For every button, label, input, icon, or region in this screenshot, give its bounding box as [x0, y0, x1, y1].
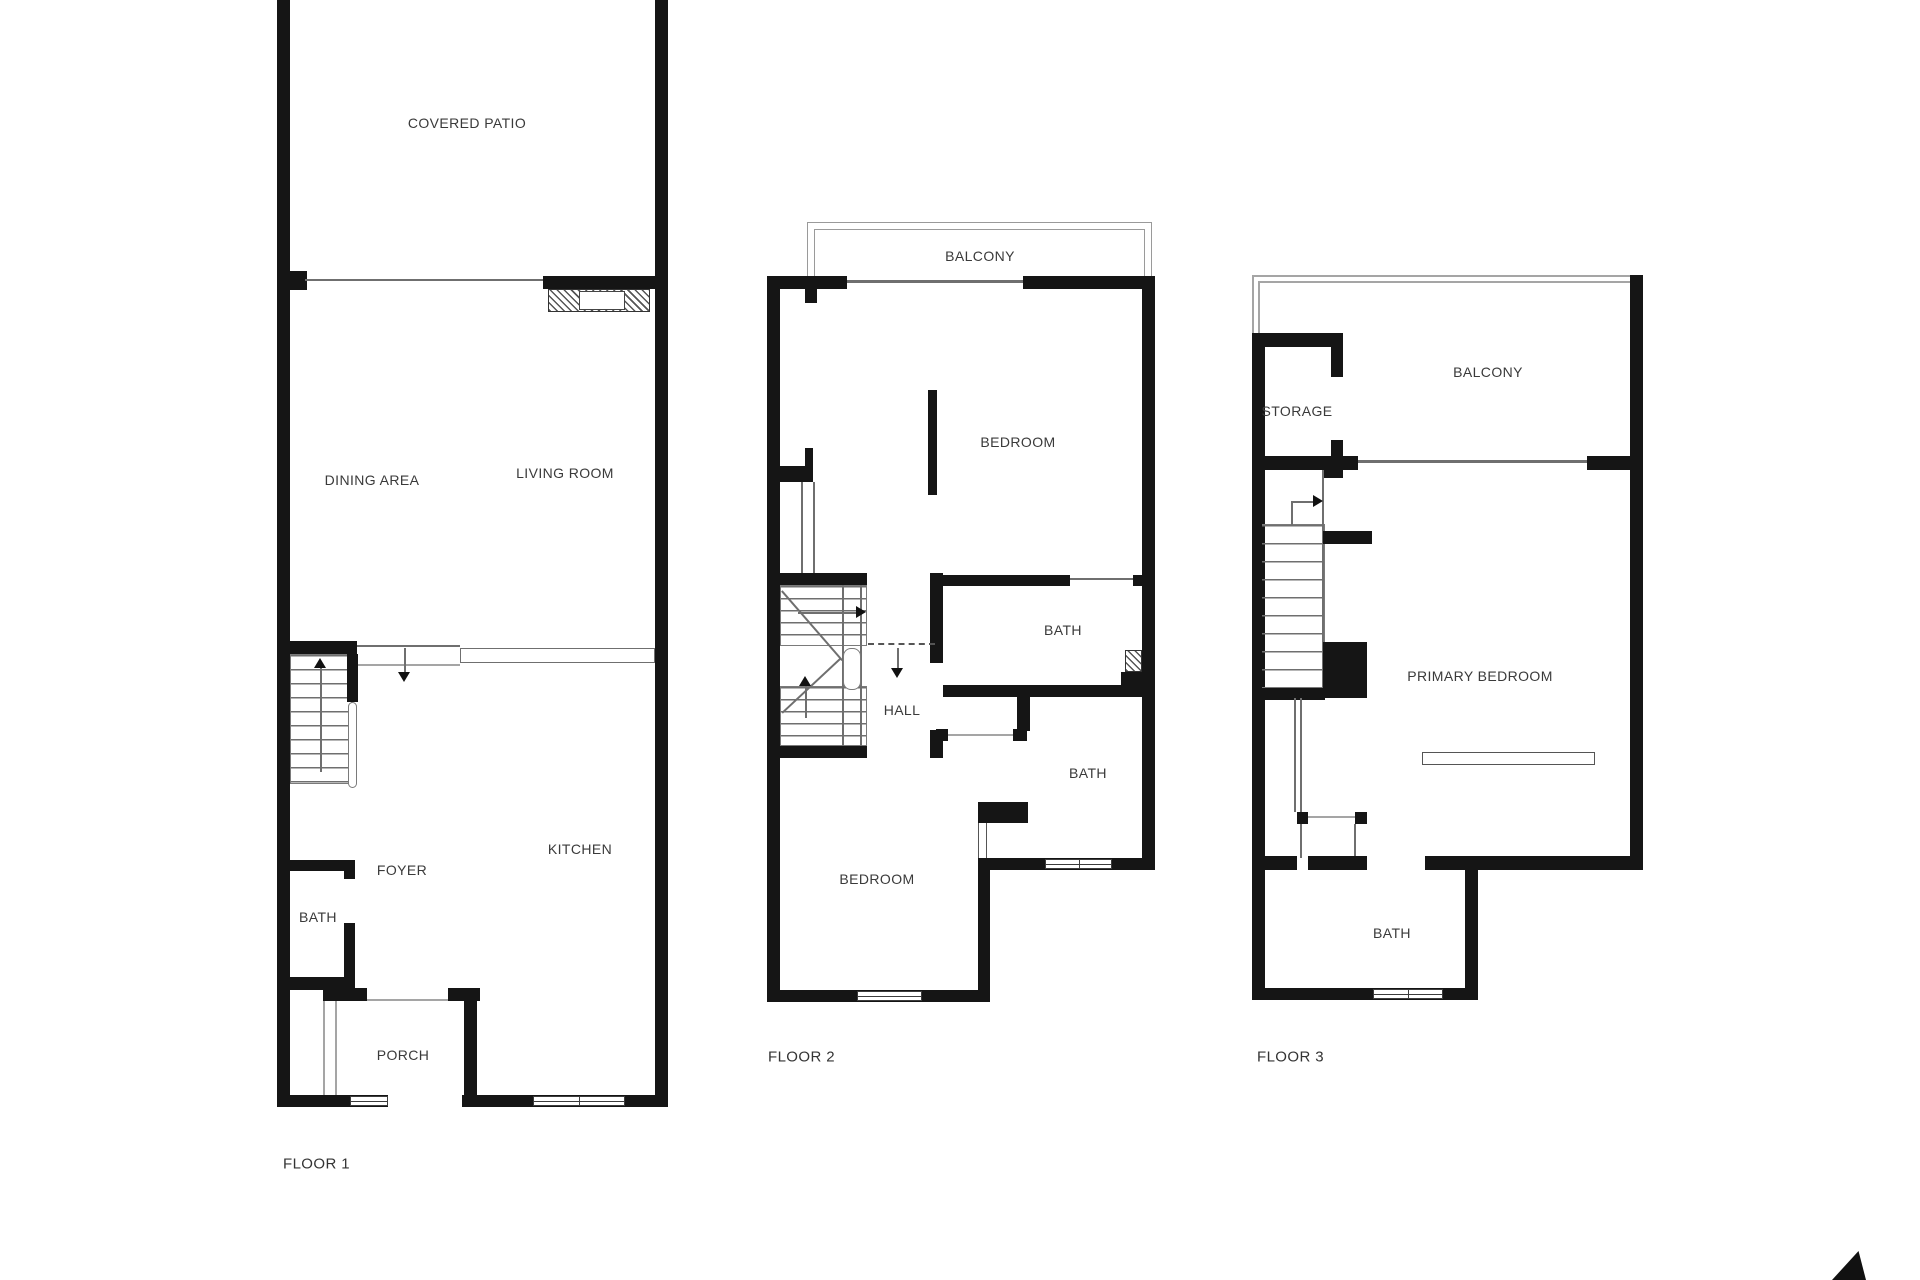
wall	[1630, 275, 1643, 870]
wall	[1587, 456, 1643, 470]
wall	[1017, 697, 1030, 731]
wall	[1323, 531, 1372, 544]
wall	[1142, 276, 1155, 870]
wardrobe-wall	[928, 390, 937, 495]
window	[857, 991, 922, 1001]
door-jamb	[1013, 729, 1027, 741]
door-swing-line	[897, 648, 899, 668]
wall	[464, 1001, 477, 1107]
closet-line	[1300, 698, 1302, 812]
wall	[1023, 276, 1155, 289]
room-label: PRIMARY BEDROOM	[1407, 668, 1553, 684]
wall	[943, 575, 1070, 586]
closet-line	[801, 482, 803, 573]
stair-direction-line	[1291, 501, 1313, 503]
window	[1373, 989, 1443, 999]
wall	[1252, 333, 1343, 347]
room-label: PORCH	[377, 1047, 430, 1063]
window	[533, 1096, 625, 1106]
window	[350, 1096, 388, 1106]
north-arrow-icon	[1832, 1251, 1866, 1280]
door-direction-arrow-icon	[398, 672, 410, 682]
room-label: BEDROOM	[980, 434, 1055, 450]
wall	[978, 858, 990, 990]
floor-caption: FLOOR 2	[768, 1049, 835, 1066]
stair-direction-arrow-icon	[1313, 495, 1323, 507]
wall	[277, 860, 355, 871]
closet-shelf-bar	[1422, 752, 1595, 765]
stair-direction-line	[320, 668, 322, 772]
wall	[277, 0, 290, 1107]
room-label: BATH	[299, 909, 337, 925]
sliding-door-line	[1358, 460, 1587, 463]
wall	[1465, 856, 1478, 1000]
closet-line	[813, 482, 815, 573]
door-jamb	[1297, 812, 1308, 824]
wall	[1252, 456, 1358, 470]
stair-direction-line	[1291, 502, 1293, 526]
wall-line	[305, 279, 545, 281]
room-label: COVERED PATIO	[408, 115, 526, 131]
room-label: BATH	[1044, 622, 1082, 638]
wall	[805, 448, 813, 466]
closet-line	[1300, 824, 1302, 858]
wall	[344, 923, 355, 977]
wall	[1425, 856, 1478, 870]
wall	[655, 0, 668, 1107]
wall	[1133, 575, 1142, 586]
room-label: HALL	[884, 702, 921, 718]
room-label: BATH	[1373, 925, 1411, 941]
wall	[1331, 347, 1343, 377]
room-label: STORAGE	[1261, 403, 1332, 419]
stair-up-arrow-icon	[314, 658, 326, 668]
room-label: FOYER	[377, 862, 427, 878]
wall	[978, 802, 1028, 823]
door-direction-arrow-icon	[891, 668, 903, 678]
stair-direction-line	[798, 612, 856, 614]
wall	[767, 466, 813, 482]
balcony-outline	[1258, 281, 1630, 283]
wall	[1322, 470, 1343, 478]
door-jamb	[936, 729, 948, 741]
closet-line	[1294, 698, 1296, 812]
stair-landing-rail	[843, 648, 861, 690]
wall-line	[1070, 578, 1133, 580]
floor-caption: FLOOR 3	[1257, 1049, 1324, 1066]
door-swing-line	[404, 648, 406, 674]
floorplan-canvas: COVERED PATIO DINING AREA LIVING ROOM FO…	[0, 0, 1920, 1280]
room-label: BALCONY	[1453, 364, 1523, 380]
room-label: BATH	[1069, 765, 1107, 781]
chase-block	[1323, 642, 1367, 698]
staircase	[780, 686, 867, 746]
door-jamb	[1355, 812, 1367, 824]
wall	[805, 289, 817, 303]
wall	[1252, 856, 1297, 870]
wall	[344, 871, 355, 879]
room-label: KITCHEN	[548, 841, 612, 857]
floor-caption: FLOOR 1	[283, 1156, 350, 1173]
room-label: BEDROOM	[839, 871, 914, 887]
wall	[323, 988, 367, 1001]
wall	[1252, 988, 1478, 1000]
sliding-door-line	[847, 280, 1023, 283]
wall	[767, 573, 867, 585]
door-opening-line	[1308, 816, 1355, 818]
wall-line	[357, 645, 460, 647]
wall-line	[357, 664, 460, 666]
porch-screen-line	[323, 1001, 325, 1095]
wall	[930, 573, 943, 663]
shower-hatch	[1125, 650, 1142, 672]
door-opening-line	[948, 734, 1013, 736]
balcony-outline	[1252, 275, 1630, 277]
fireplace-opening	[579, 291, 625, 310]
room-label: LIVING ROOM	[516, 465, 614, 481]
wall	[767, 276, 780, 1002]
half-wall-counter	[460, 648, 655, 663]
room-label: DINING AREA	[325, 472, 420, 488]
overhead-dashed-line	[868, 643, 935, 645]
closet-line	[1354, 824, 1356, 858]
wall	[1465, 856, 1643, 870]
stair-direction-arrow-icon	[856, 606, 866, 618]
wall	[543, 276, 660, 289]
stair-up-arrow-icon	[799, 676, 811, 686]
balcony-outline	[1252, 275, 1254, 333]
wall	[1252, 688, 1325, 700]
room-label: BALCONY	[945, 248, 1015, 264]
porch-screen-line	[335, 1001, 337, 1095]
wall	[943, 685, 1123, 697]
wall	[277, 641, 357, 654]
porch-opening	[388, 1095, 462, 1107]
wall	[1308, 856, 1367, 870]
window	[978, 823, 987, 858]
window	[1045, 859, 1112, 869]
wall	[347, 654, 358, 702]
wall	[767, 746, 867, 758]
stair-rail	[348, 702, 357, 788]
wall	[277, 271, 307, 290]
wall	[1121, 672, 1142, 697]
stair-direction-line	[805, 684, 807, 718]
staircase	[1262, 524, 1325, 688]
wall	[448, 988, 480, 1001]
balcony-outline	[1258, 281, 1260, 333]
threshold-line	[367, 999, 448, 1001]
